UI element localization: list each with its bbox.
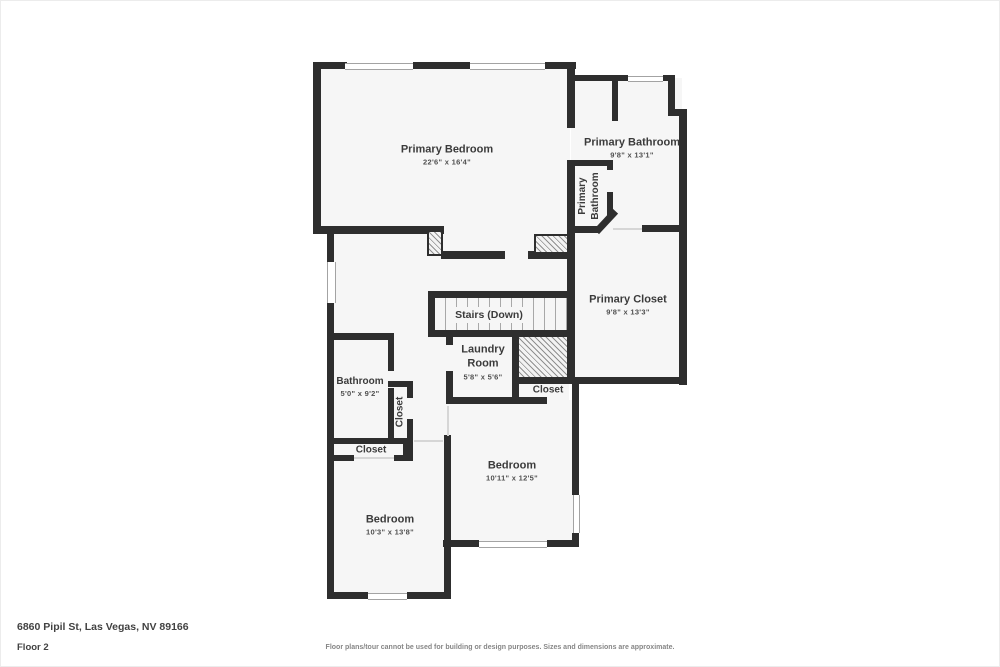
room-label-bathroom: Bathroom 5'0" x 9'2" (336, 375, 383, 399)
room-name: Primary Bathroom (577, 172, 601, 219)
room-name: Stairs (Down) (455, 309, 523, 321)
room-label-primary-bedroom: Primary Bedroom 22'6" x 16'4" (401, 142, 493, 167)
wall (327, 333, 394, 340)
wall (567, 160, 575, 233)
wall (443, 540, 479, 547)
window (327, 262, 336, 303)
wall (327, 333, 334, 444)
wall (642, 225, 687, 232)
room-dims: 5'0" x 9'2" (336, 389, 383, 399)
wall (388, 333, 394, 371)
room-label-closet-hall: Closet (533, 384, 564, 397)
wall (547, 540, 579, 547)
window (470, 63, 545, 70)
room-dims: 5'8" x 5'6" (451, 372, 515, 382)
address-text: 6860 Pipil St, Las Vegas, NV 89166 (17, 621, 189, 633)
window (479, 541, 547, 548)
wall (428, 291, 575, 298)
room-name: Primary Bedroom (401, 143, 493, 155)
door-opening (414, 440, 443, 442)
room-name: Closet (395, 397, 406, 428)
room-name: Closet (356, 445, 387, 456)
room-dims: 9'8" x 13'3" (589, 308, 667, 318)
window (628, 76, 663, 82)
room-name: Bedroom (366, 513, 414, 525)
disclaimer-text: Floor plans/tour cannot be used for buil… (0, 644, 1000, 651)
room-label-bedroom-right: Bedroom 10'11" x 12'5" (486, 458, 538, 483)
room-dims: 9'8" x 13'1" (584, 151, 680, 161)
floor-plan-page: Primary Bedroom 22'6" x 16'4" Primary Ba… (0, 0, 1000, 667)
wall (407, 419, 413, 440)
room-name: Primary Bathroom (584, 136, 680, 148)
room-name: Bathroom (336, 376, 383, 387)
room-name: Closet (533, 385, 564, 396)
wall (444, 435, 451, 599)
room-dims: 10'3" x 13'8" (366, 528, 414, 538)
room-label-primary-closet: Primary Closet 9'8" x 13'3" (589, 292, 667, 317)
wall (567, 226, 600, 233)
door-opening (447, 406, 449, 436)
hatched-area (534, 234, 570, 254)
wall (612, 81, 618, 121)
door-opening (354, 457, 396, 459)
wall (394, 455, 413, 461)
hatched-area (517, 335, 569, 379)
room-name: Bedroom (488, 459, 536, 471)
door-opening (613, 228, 642, 230)
room-label-closet-lower: Closet (356, 444, 387, 457)
wall (679, 109, 687, 385)
wall (327, 443, 334, 599)
wall (407, 381, 413, 398)
wall (567, 62, 575, 128)
room-dims: 10'11" x 12'5" (486, 474, 538, 484)
window (368, 593, 407, 600)
room-label-primary-bathroom: Primary Bathroom 9'8" x 13'1" (584, 135, 680, 160)
room-name: Laundry Room (461, 343, 504, 369)
wall (572, 383, 579, 495)
wall (313, 62, 321, 234)
room-name: Primary Closet (589, 293, 667, 305)
room-dims: 22'6" x 16'4" (401, 158, 493, 168)
wall (441, 251, 505, 259)
wall (567, 75, 628, 81)
room-label-laundry: Laundry Room 5'8" x 5'6" (451, 342, 515, 381)
window (345, 63, 413, 70)
room-label-closet-vertical: Closet (394, 397, 407, 428)
wall (332, 455, 354, 461)
room-label-primary-bathroom-wc: Primary Bathroom (576, 168, 602, 224)
stairs-label: Stairs (Down) (449, 307, 529, 323)
wall (413, 62, 470, 69)
wall (607, 160, 613, 170)
room-label-bedroom-left: Bedroom 10'3" x 13'8" (366, 512, 414, 537)
wall (446, 397, 547, 404)
wall (327, 592, 368, 599)
window (573, 495, 580, 533)
